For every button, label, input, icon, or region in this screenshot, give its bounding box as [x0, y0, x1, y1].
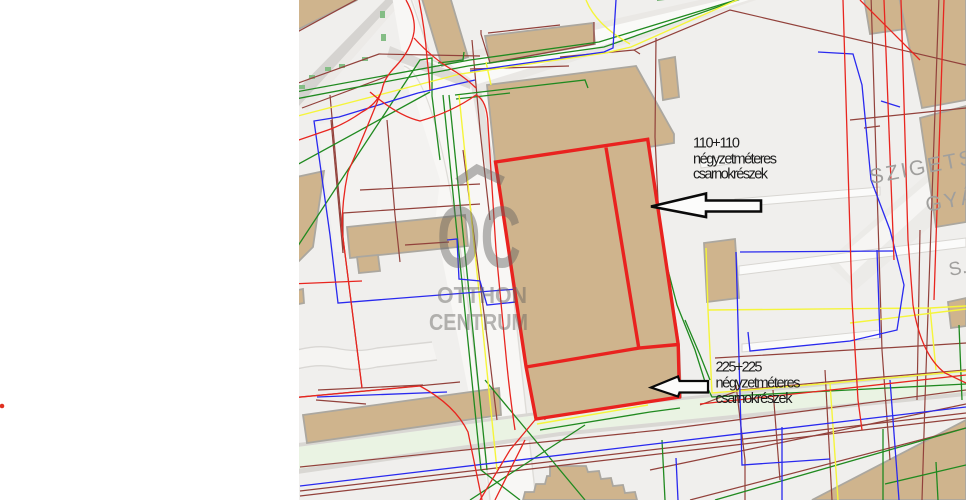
- svg-text:225+225: 225+225: [716, 360, 763, 376]
- svg-text:négyzetméteres: négyzetméteres: [693, 152, 777, 168]
- svg-text:OTTHON: OTTHON: [437, 282, 527, 308]
- svg-text:csarnokrészek: csarnokrészek: [716, 391, 794, 407]
- svg-text:110+110: 110+110: [693, 136, 740, 152]
- svg-text:S.: S.: [947, 257, 966, 281]
- svg-text:négyzetméteres: négyzetméteres: [716, 376, 801, 392]
- svg-text:CENTRUM: CENTRUM: [429, 309, 528, 335]
- svg-text:csarnokrészek: csarnokrészek: [693, 167, 769, 183]
- svg-text:OC: OC: [437, 189, 521, 286]
